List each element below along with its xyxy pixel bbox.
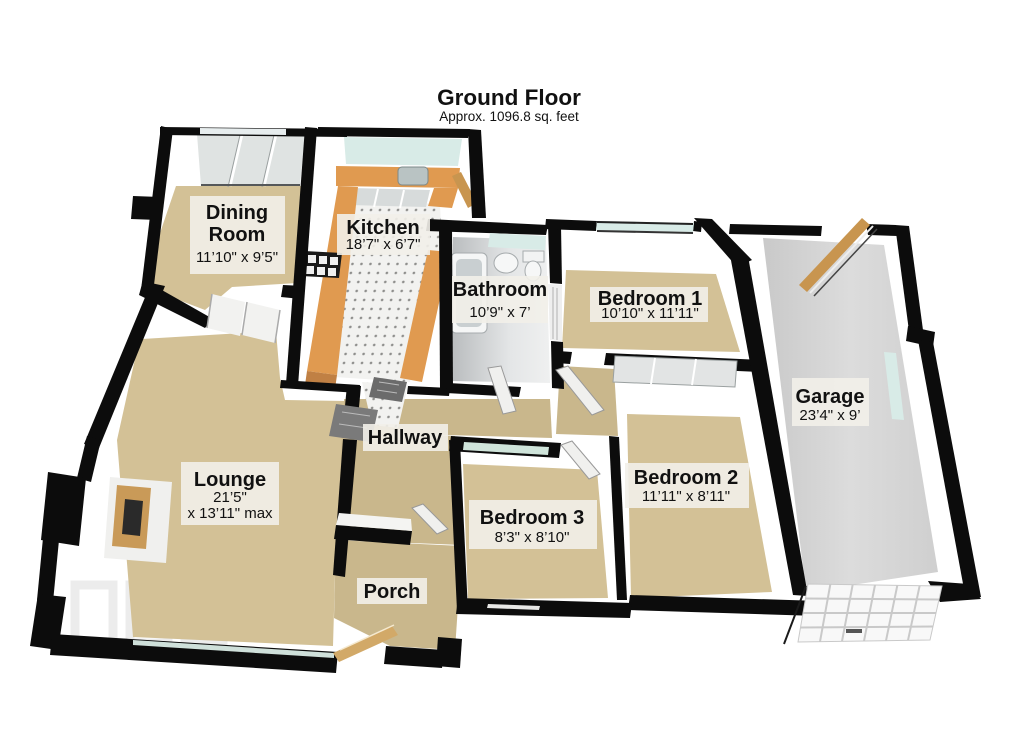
svg-text:Bedroom 2: Bedroom 2 [634,467,738,489]
svg-text:10’9" x 7’: 10’9" x 7’ [469,304,530,321]
svg-text:Ground Floor: Ground Floor [437,85,581,110]
svg-text:Porch: Porch [364,581,421,603]
svg-text:23’4" x 9’: 23’4" x 9’ [799,407,860,424]
svg-text:11’11" x 8’11": 11’11" x 8’11" [642,488,730,505]
svg-text:Room: Room [209,224,266,246]
svg-text:Hallway: Hallway [368,427,443,449]
svg-text:10’10" x 11’11": 10’10" x 11’11" [601,305,699,322]
svg-text:8’3" x 8’10": 8’3" x 8’10" [495,529,570,546]
svg-text:Dining: Dining [206,202,268,224]
svg-text:21’5": 21’5" [213,489,247,506]
svg-text:Lounge: Lounge [194,469,266,491]
svg-text:Garage: Garage [796,386,865,408]
svg-text:11’10" x 9’5": 11’10" x 9’5" [196,249,278,266]
svg-text:x 13’11" max: x 13’11" max [187,505,273,522]
svg-text:Bathroom: Bathroom [453,279,547,301]
svg-text:Approx. 1096.8 sq. feet: Approx. 1096.8 sq. feet [439,109,579,124]
svg-text:18’7" x 6’7": 18’7" x 6’7" [346,236,421,253]
svg-text:Bedroom 3: Bedroom 3 [480,507,584,529]
